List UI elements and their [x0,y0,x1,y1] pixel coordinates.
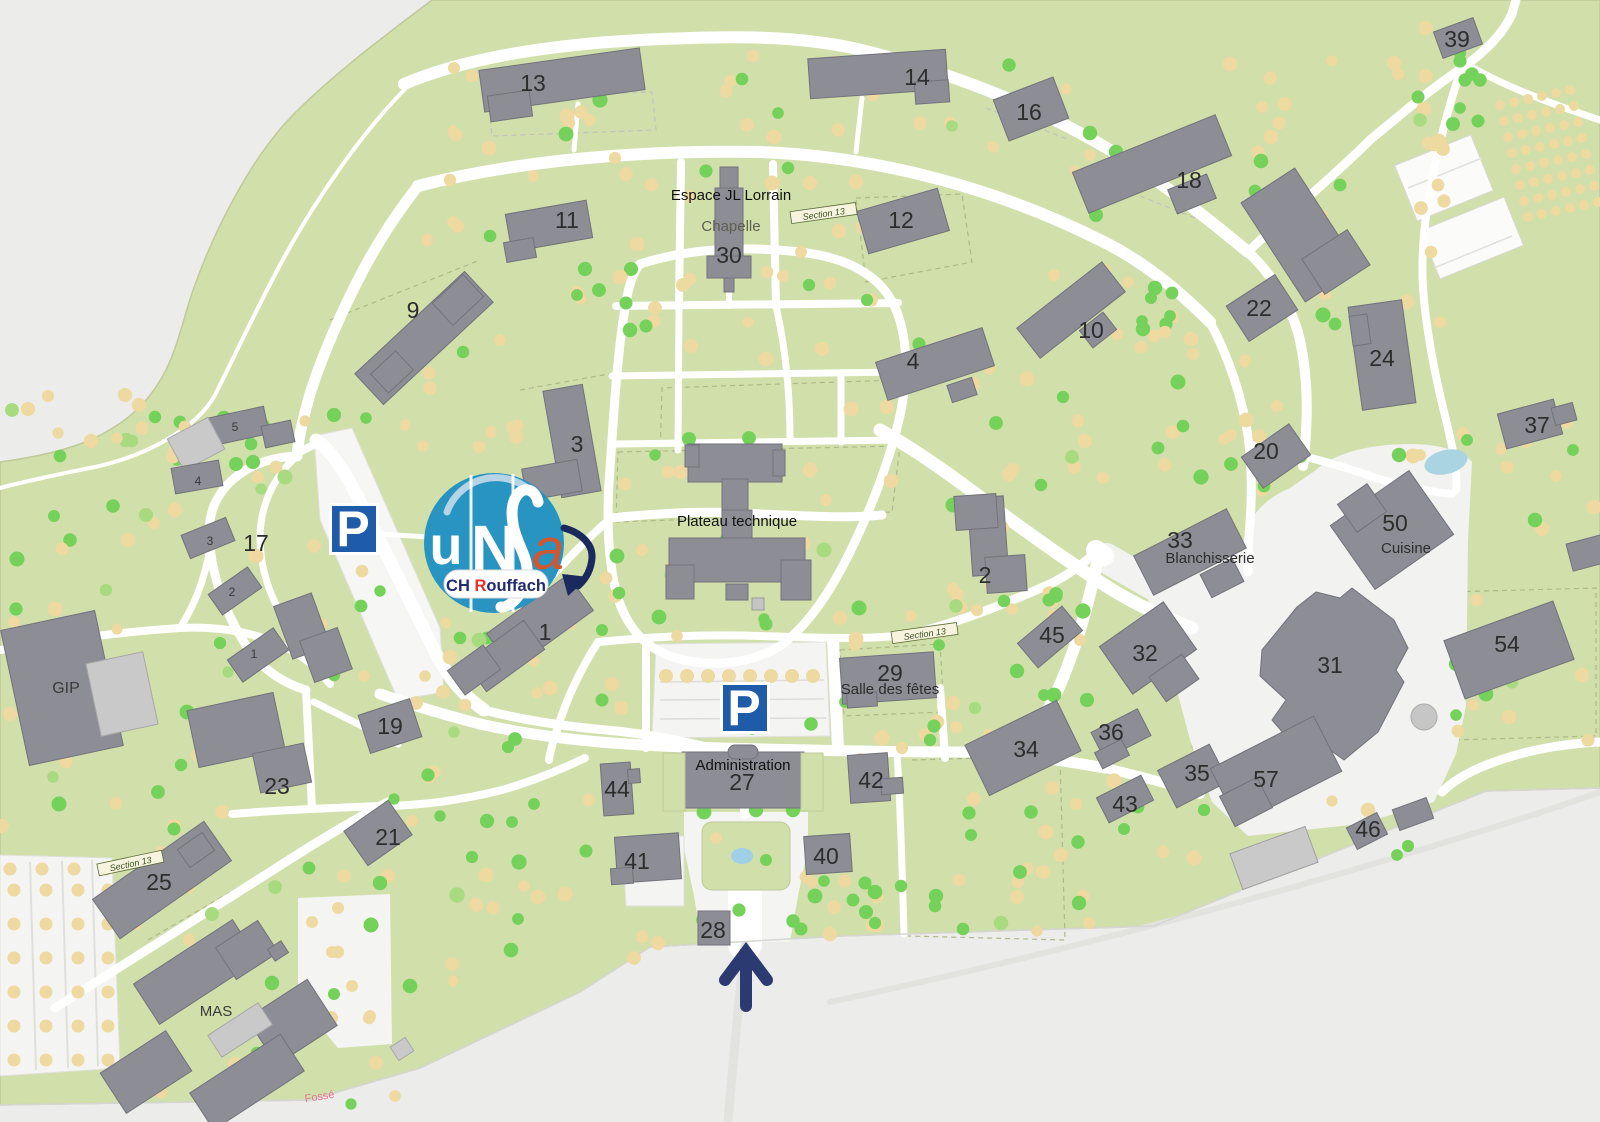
svg-text:2: 2 [229,585,236,599]
svg-text:1: 1 [251,647,258,661]
svg-text:36: 36 [1098,719,1124,745]
svg-text:31: 31 [1317,652,1343,678]
svg-text:22: 22 [1246,295,1272,321]
svg-text:54: 54 [1494,631,1520,657]
svg-text:3: 3 [207,534,214,548]
svg-text:10: 10 [1078,317,1104,343]
svg-text:42: 42 [858,767,884,793]
svg-text:4: 4 [907,348,920,374]
svg-text:2: 2 [979,562,992,588]
svg-text:P: P [727,680,760,736]
svg-text:CH Rouffach: CH Rouffach [446,577,546,595]
svg-text:46: 46 [1355,816,1381,842]
svg-text:24: 24 [1369,345,1395,371]
svg-text:5: 5 [232,420,239,434]
svg-text:3: 3 [571,431,584,457]
svg-text:19: 19 [377,713,403,739]
svg-text:16: 16 [1016,99,1042,125]
svg-text:44: 44 [604,776,630,802]
svg-text:43: 43 [1112,791,1138,817]
svg-text:23: 23 [264,773,290,799]
svg-text:GIP: GIP [52,680,80,697]
svg-text:30: 30 [716,242,742,268]
svg-text:37: 37 [1524,412,1550,438]
svg-text:Salle des fêtes: Salle des fêtes [841,681,939,698]
svg-text:34: 34 [1013,736,1039,762]
svg-text:41: 41 [624,848,650,874]
svg-text:1: 1 [539,619,552,645]
svg-text:P: P [336,501,369,557]
svg-text:20: 20 [1253,438,1279,464]
svg-text:4: 4 [195,474,202,488]
svg-text:Blanchisserie: Blanchisserie [1165,550,1254,567]
svg-text:25: 25 [146,869,172,895]
svg-text:Chapelle: Chapelle [701,218,760,235]
svg-text:12: 12 [888,207,914,233]
svg-text:11: 11 [555,207,579,233]
svg-text:32: 32 [1132,640,1158,666]
svg-text:35: 35 [1184,760,1210,786]
svg-text:45: 45 [1039,622,1065,648]
svg-text:Administration: Administration [695,757,790,774]
svg-text:21: 21 [375,824,401,850]
svg-text:28: 28 [700,917,726,943]
svg-text:14: 14 [904,64,930,90]
svg-text:u: u [430,516,463,576]
svg-text:Plateau technique: Plateau technique [677,513,797,530]
svg-text:18: 18 [1176,167,1202,193]
svg-text:9: 9 [407,297,420,323]
svg-text:13: 13 [520,70,546,96]
svg-text:17: 17 [243,530,269,556]
svg-text:Cuisine: Cuisine [1381,540,1431,557]
svg-text:50: 50 [1382,510,1408,536]
svg-text:40: 40 [813,843,839,869]
svg-text:MAS: MAS [200,1003,233,1020]
svg-text:Espace JL Lorrain: Espace JL Lorrain [671,187,791,204]
svg-text:57: 57 [1253,766,1279,792]
svg-text:39: 39 [1444,26,1470,52]
